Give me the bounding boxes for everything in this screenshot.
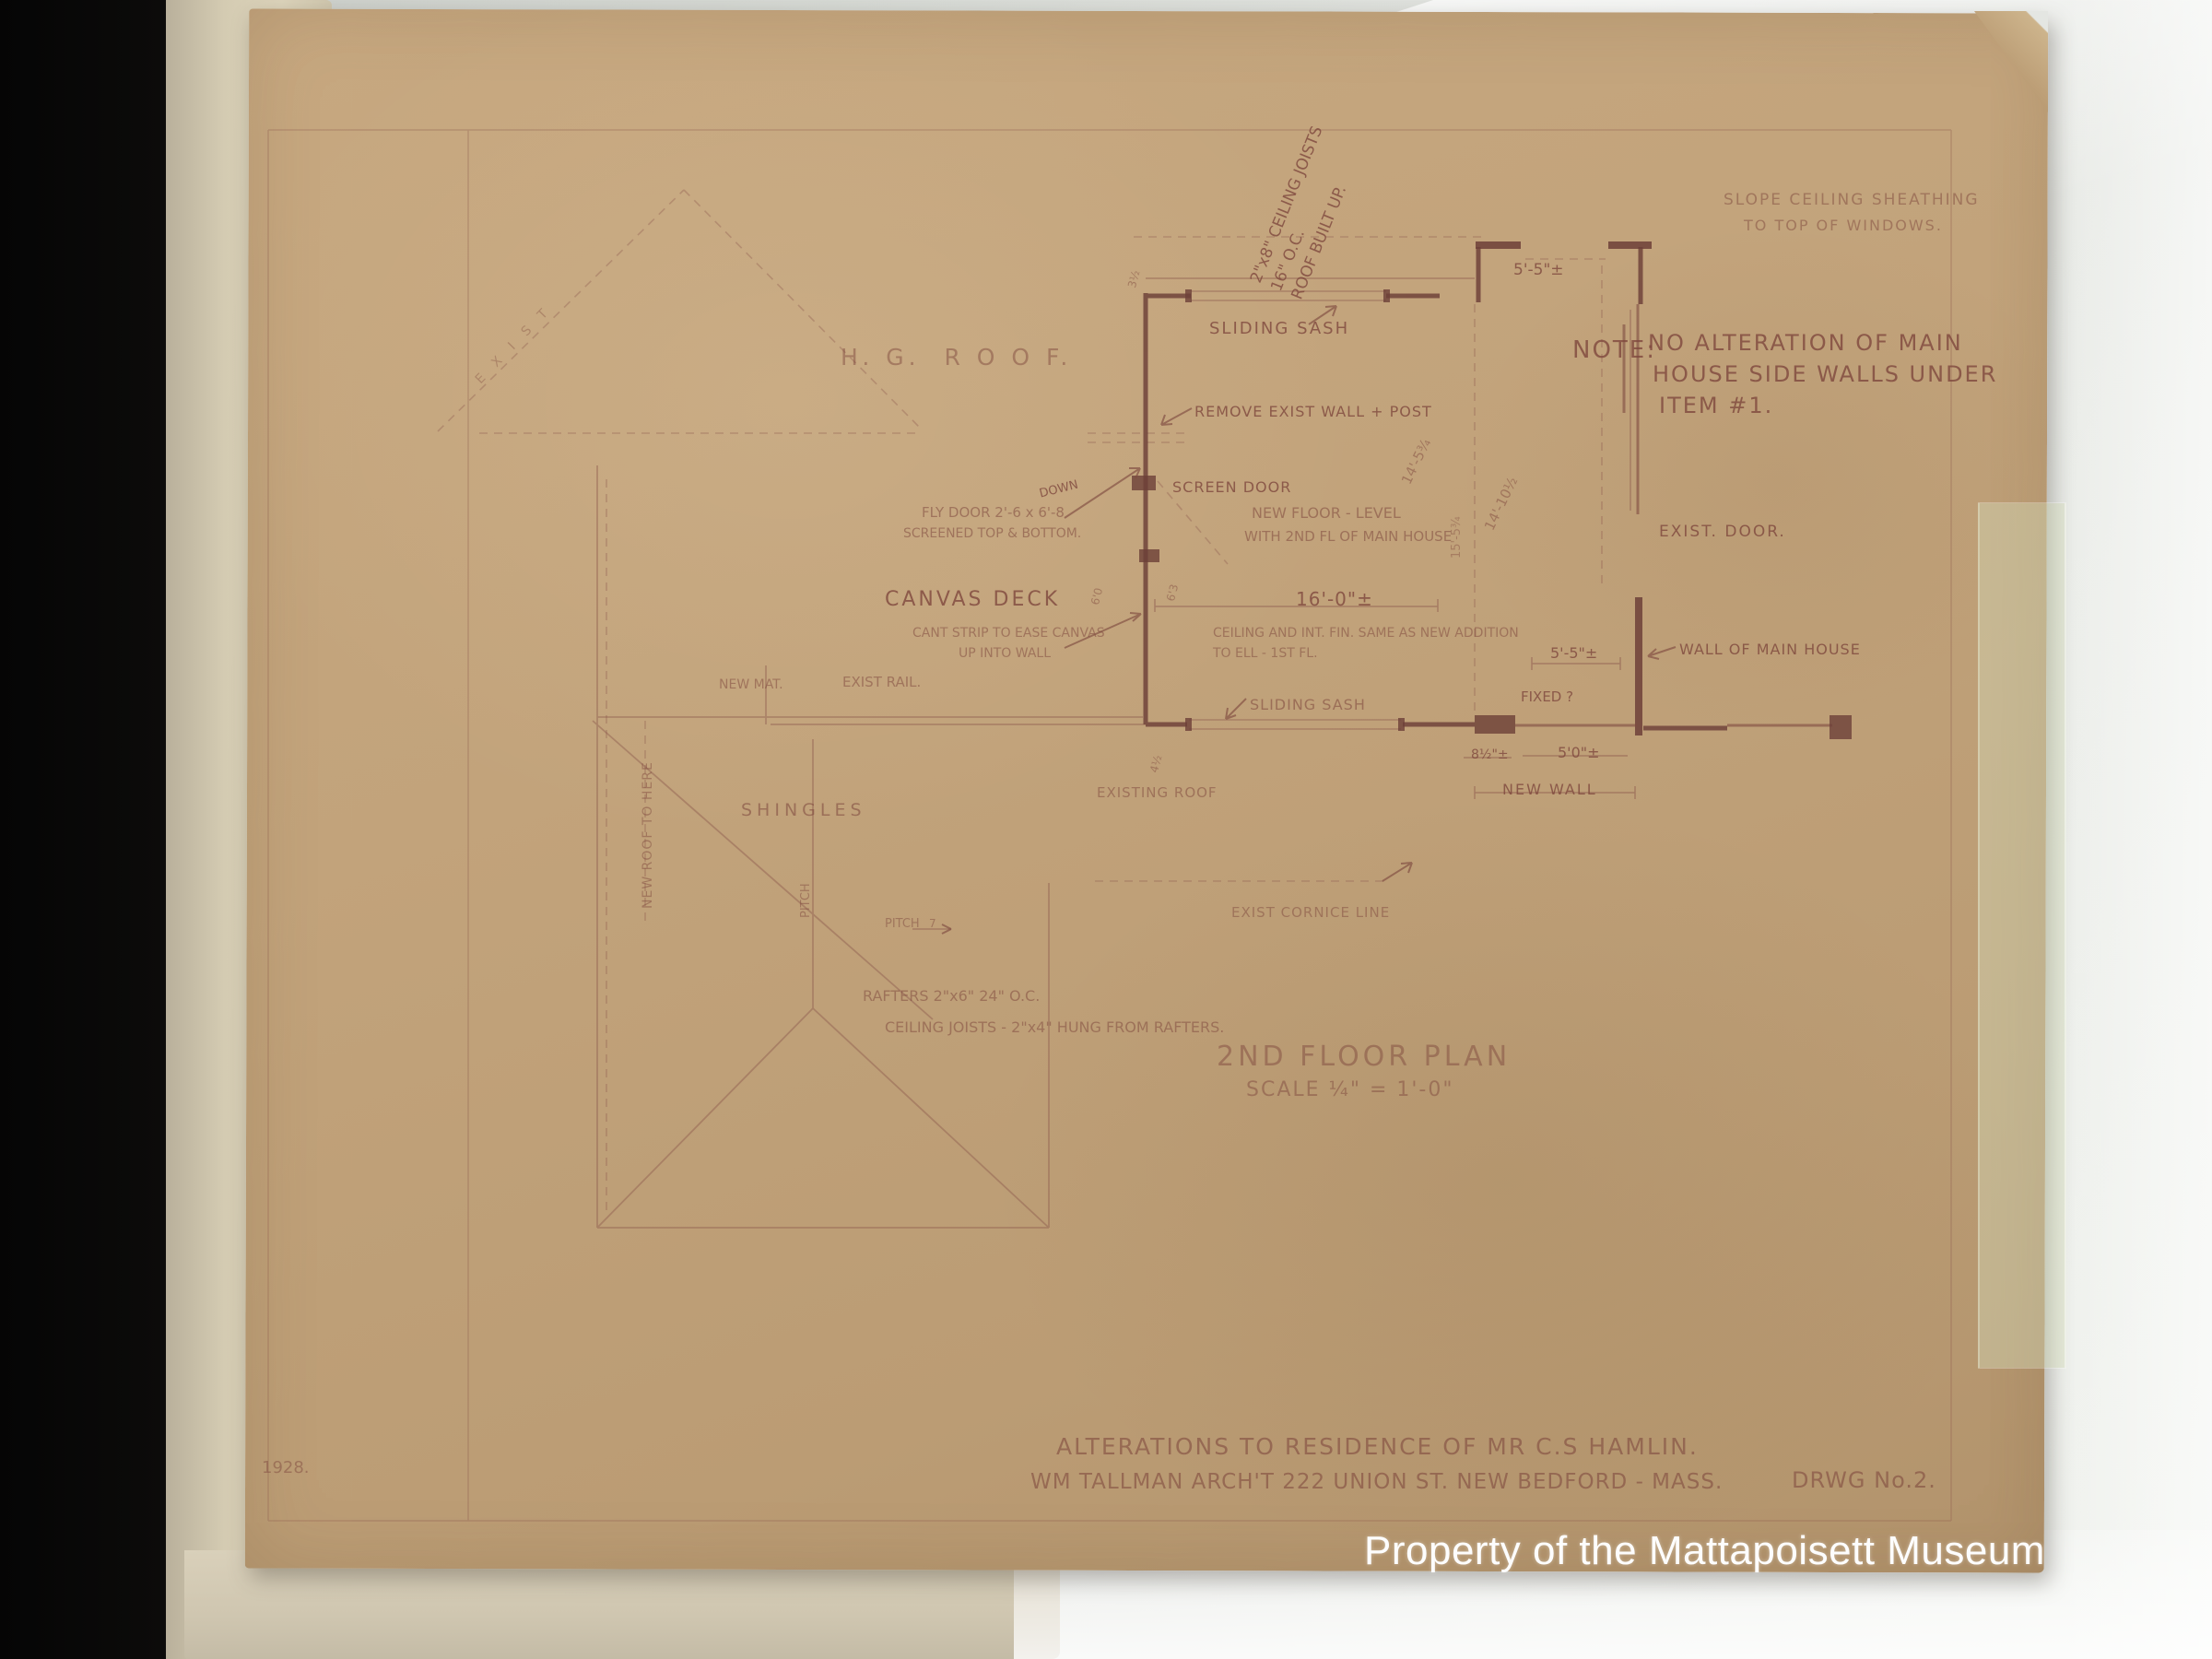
- acetate-strip: [1978, 503, 2066, 1368]
- light-reflection: [2065, 0, 2212, 1659]
- photo-of-drawing: { "photo": { "watermark": "Property of t…: [0, 0, 2212, 1659]
- watermark-text: Property of the Mattapoisett Museum: [1364, 1528, 2045, 1574]
- blueprint-sheet: [245, 8, 2048, 1572]
